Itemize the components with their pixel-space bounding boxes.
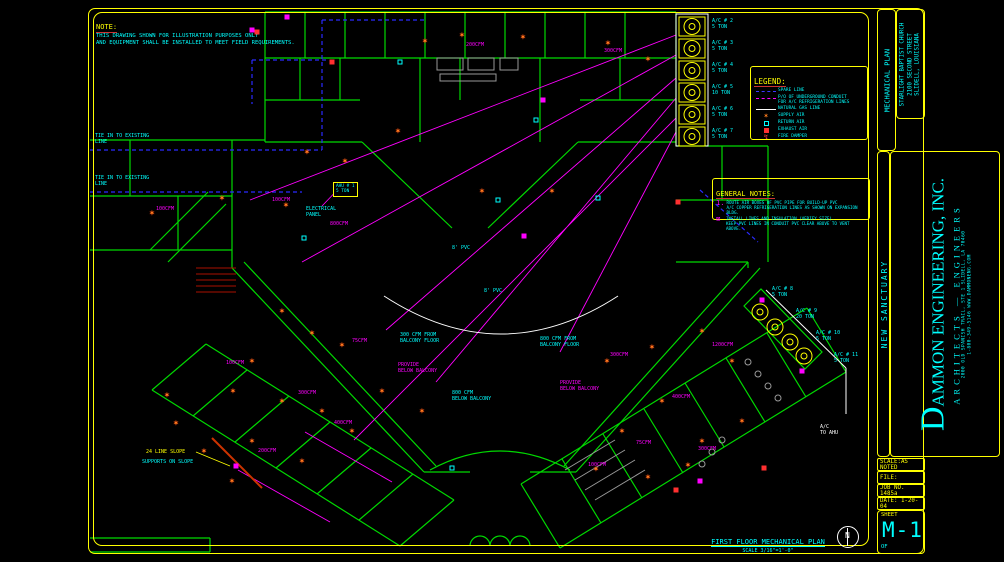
general-note-marker: 1. — [716, 200, 724, 215]
plan-annotation: 300CFM — [604, 48, 622, 54]
supply-diffuser-icon: ✶ — [605, 40, 610, 49]
plan-scale: SCALE 3/16"=1'-0" — [700, 548, 836, 554]
plan-annotation: 800CFM — [330, 221, 348, 227]
exhaust-grille-icon — [676, 200, 681, 205]
note-title: NOTE: — [96, 23, 117, 33]
fire-damper-icon — [285, 15, 290, 20]
plan-annotation: 8' PVC — [452, 245, 470, 251]
supply-diffuser-icon: ✶ — [342, 158, 347, 167]
plan-annotation: PROVIDE BELOW BALCONY — [560, 380, 599, 392]
plan-annotation: A/C # 4 5 TON — [712, 62, 733, 74]
plan-annotation: A/C # 5 10 TON — [712, 84, 733, 96]
supply-diffuser-icon: ✶ — [649, 344, 654, 353]
legend-title: LEGEND: — [754, 77, 786, 87]
supply-diffuser-icon: ✶ — [309, 330, 314, 339]
plan-annotation: 75CFM — [352, 338, 367, 344]
plan-annotation: ELECTRICAL PANEL — [306, 206, 336, 218]
supply-diffuser-icon: ✶ — [201, 448, 206, 457]
legend-item-label: RETURN AIR — [778, 120, 804, 125]
firm-contact: 1-800-349-5146 WWW.DAMMONENG.COM — [968, 254, 974, 355]
plan-title-block: FIRST FLOOR MECHANICAL PLAN SCALE 3/16"=… — [700, 529, 836, 554]
illustration-note: NOTE: THIS DRAWING SHOWN FOR ILLUSTRATIO… — [96, 14, 326, 47]
plan-annotation: A/C # 8 5 TON — [772, 286, 793, 298]
supply-diffuser-icon: ✶ — [739, 418, 744, 427]
legend-item: SPARE LINE — [754, 88, 864, 94]
refrigerant-line-icon — [754, 95, 778, 101]
project-name: NEW SANCTUARY — [880, 260, 889, 349]
general-note-item: ⊠INSTALL LINES AND INSULATION (VERIFY SI… — [716, 216, 866, 231]
general-note-text: INSTALL LINES AND INSULATION (VERIFY SIZ… — [726, 216, 866, 231]
north-arrow-icon: N — [837, 526, 859, 548]
return-grille-icon — [596, 196, 601, 201]
note-line-2: AND EQUIPMENT SHALL BE INSTALLED TO MEET… — [96, 40, 326, 47]
supply-diffuser-icon: ✶ — [729, 358, 734, 367]
supply-diffuser-icon: ✶ — [422, 38, 427, 47]
discipline-label: MECHANICAL PLAN — [883, 48, 891, 111]
ahu-equipment-tag: AHU # 1 5 TON — [333, 182, 358, 197]
plan-annotation: PROVIDE BELOW BALCONY — [398, 362, 437, 374]
supply-diffuser-icon: ✶ — [164, 392, 169, 401]
supply-diffuser-icon: ✶ — [619, 428, 624, 437]
spare-line-icon — [754, 88, 778, 94]
plan-annotation: A/C # 2 5 TON — [712, 18, 733, 30]
note-line-1: THIS DRAWING SHOWN FOR ILLUSTRATION PURP… — [96, 33, 326, 40]
supply-diffuser-icon: ✶ — [419, 408, 424, 417]
legend-item: NATURAL GAS LINE — [754, 106, 864, 112]
supply-diffuser-icon: ✶ — [604, 358, 609, 367]
supply-diffuser-icon: ✶ — [593, 466, 598, 475]
return-grille-icon — [398, 60, 403, 65]
plan-annotation: 200CFM — [466, 42, 484, 48]
legend-item: EXHAUST AIR — [754, 127, 864, 133]
legend-items: SPARE LINEP/O OF UNDERGROUND CONDUIT FOR… — [754, 88, 864, 140]
supply-diffuser-icon: ✶ — [459, 32, 464, 41]
general-note-text: ROUTE AIR BOXES OF PVC PIPE FOR BUILD-UP… — [726, 200, 866, 215]
client-city: SLIDELL, LOUISIANA — [914, 33, 922, 96]
general-note-item: 1.ROUTE AIR BOXES OF PVC PIPE FOR BUILD-… — [716, 200, 866, 215]
plan-annotation: 400CFM — [672, 394, 690, 400]
legend-item-label: SPARE LINE — [778, 88, 804, 93]
plan-annotation: 300CFM — [610, 352, 628, 358]
supply-air-icon: ✶ — [754, 113, 778, 119]
plan-annotation: 300CFM — [298, 390, 316, 396]
supply-diffuser-icon: ✶ — [319, 408, 324, 417]
exhaust-grille-icon — [255, 30, 260, 35]
fire-damper-icon — [522, 234, 527, 239]
sheet-of-label: OF — [881, 544, 888, 550]
supply-diffuser-icon: ✶ — [645, 56, 650, 65]
supply-diffuser-icon: ✶ — [230, 388, 235, 397]
fire-damper-icon: ↯ — [754, 134, 778, 140]
cad-sheet: { "note": { "title": "NOTE:", "lines": [… — [0, 0, 1004, 562]
firm-subtitle: ARCHITECTS — ENGINEERS — [952, 204, 962, 404]
date-row: DATE: 1-20-04 — [877, 497, 925, 510]
plan-annotation: A/C # 7 5 TON — [712, 128, 733, 140]
supply-diffuser-icon: ✶ — [304, 149, 309, 158]
client-street: 2100 SECOND STREET — [907, 33, 915, 96]
fire-damper-icon — [800, 369, 805, 374]
fire-damper-icon — [250, 28, 255, 33]
supply-diffuser-icon: ✶ — [279, 398, 284, 407]
plan-annotation: 300CFM — [698, 446, 716, 452]
firm-name: DAMMON ENGINEERING, INC. — [917, 177, 951, 430]
fire-damper-icon — [698, 479, 703, 484]
exhaust-grille-icon — [762, 466, 767, 471]
supply-diffuser-icon: ✶ — [339, 342, 344, 351]
plan-annotation: TIE IN TO EXISTING LINE — [95, 175, 149, 187]
exhaust-grille-icon — [674, 488, 679, 493]
fire-damper-icon — [541, 98, 546, 103]
plan-annotation: 800 CFM BELOW BALCONY — [452, 390, 491, 402]
legend-item-label: FIRE DAMPER — [778, 134, 807, 139]
file-row: FILE: — [877, 471, 925, 484]
plan-annotation: A/C TO AHU — [820, 424, 838, 436]
plan-annotation: 1200CFM — [712, 342, 733, 348]
return-grille-icon — [302, 236, 307, 241]
return-air-icon — [754, 120, 778, 126]
supply-diffuser-icon: ✶ — [219, 195, 224, 204]
plan-annotation: A/C # 3 5 TON — [712, 40, 733, 52]
general-notes-items: 1.ROUTE AIR BOXES OF PVC PIPE FOR BUILD-… — [716, 200, 866, 231]
north-label: N — [845, 531, 850, 540]
plan-annotation: 400CFM — [334, 420, 352, 426]
plan-annotation: 75CFM — [636, 440, 651, 446]
plan-title: FIRST FLOOR MECHANICAL PLAN — [711, 538, 825, 547]
client-name: STARLIGHT BAPTIST CHURCH — [899, 22, 907, 106]
return-grille-icon — [496, 198, 501, 203]
plan-annotation: A/C # 11 5 TON — [834, 352, 858, 364]
legend-item-label: NATURAL GAS LINE — [778, 106, 820, 111]
return-grille-icon — [534, 118, 539, 123]
supply-diffuser-icon: ✶ — [699, 328, 704, 337]
legend-item-label: P/O OF UNDERGROUND CONDUIT FOR A/C REFRI… — [778, 95, 849, 105]
plan-annotation: TIE IN TO EXISTING LINE — [95, 133, 149, 145]
legend-item: P/O OF UNDERGROUND CONDUIT FOR A/C REFRI… — [754, 95, 864, 105]
plan-annotation: 300 CFM FROM BALCONY FLOOR — [400, 332, 439, 344]
plan-annotation: A/C # 6 5 TON — [712, 106, 733, 118]
supply-diffuser-icon: ✶ — [395, 128, 400, 137]
general-notes-box: GENERAL NOTES: 1.ROUTE AIR BOXES OF PVC … — [712, 178, 870, 220]
plan-annotation: A/C # 10 5 TON — [816, 330, 840, 342]
supply-diffuser-icon: ✶ — [249, 358, 254, 367]
supply-diffuser-icon: ✶ — [549, 188, 554, 197]
supply-diffuser-icon: ✶ — [349, 428, 354, 437]
legend-item-label: SUPPLY AIR — [778, 113, 804, 118]
plan-annotation: 24 LINE SLOPE — [146, 449, 185, 455]
job-row: JOB NO. 1485a — [877, 484, 925, 497]
plan-annotation: SUPPORTS ON SLOPE — [142, 459, 193, 465]
supply-diffuser-icon: ✶ — [283, 202, 288, 211]
supply-diffuser-icon: ✶ — [659, 398, 664, 407]
supply-diffuser-icon: ✶ — [229, 478, 234, 487]
legend-box: LEGEND: SPARE LINEP/O OF UNDERGROUND CON… — [750, 66, 868, 140]
return-grille-icon — [450, 466, 455, 471]
fire-damper-icon — [234, 464, 239, 469]
plan-annotation: 800 CFM FROM BALCONY FLOOR — [540, 336, 579, 348]
general-note-marker: ⊠ — [716, 216, 724, 231]
general-notes-title: GENERAL NOTES: — [716, 190, 775, 199]
legend-item: ↯FIRE DAMPER — [754, 134, 864, 140]
supply-diffuser-icon: ✶ — [685, 462, 690, 471]
supply-diffuser-icon: ✶ — [149, 210, 154, 219]
supply-diffuser-icon: ✶ — [645, 474, 650, 483]
supply-diffuser-icon: ✶ — [520, 34, 525, 43]
supply-diffuser-icon: ✶ — [479, 188, 484, 197]
plan-annotation: A/C # 9 20 TON — [796, 308, 817, 320]
supply-diffuser-icon: ✶ — [379, 388, 384, 397]
exhaust-grille-icon — [330, 60, 335, 65]
plan-annotation: 200CFM — [258, 448, 276, 454]
supply-diffuser-icon: ✶ — [249, 438, 254, 447]
plan-annotation: 100CFM — [226, 360, 244, 366]
supply-diffuser-icon: ✶ — [173, 420, 178, 429]
plan-annotation: 100CFM — [156, 206, 174, 212]
legend-item-label: EXHAUST AIR — [778, 127, 807, 132]
supply-diffuser-icon: ✶ — [279, 308, 284, 317]
supply-diffuser-icon: ✶ — [699, 438, 704, 447]
fire-damper-icon — [760, 298, 765, 303]
plan-annotation: 8' PVC — [484, 288, 502, 294]
scale-row: SCALE:AS NOTED — [877, 458, 925, 471]
supply-diffuser-icon: ✶ — [299, 458, 304, 467]
sheet-number: M-1 — [882, 518, 923, 542]
legend-item: ✶SUPPLY AIR — [754, 113, 864, 119]
legend-item: RETURN AIR — [754, 120, 864, 126]
